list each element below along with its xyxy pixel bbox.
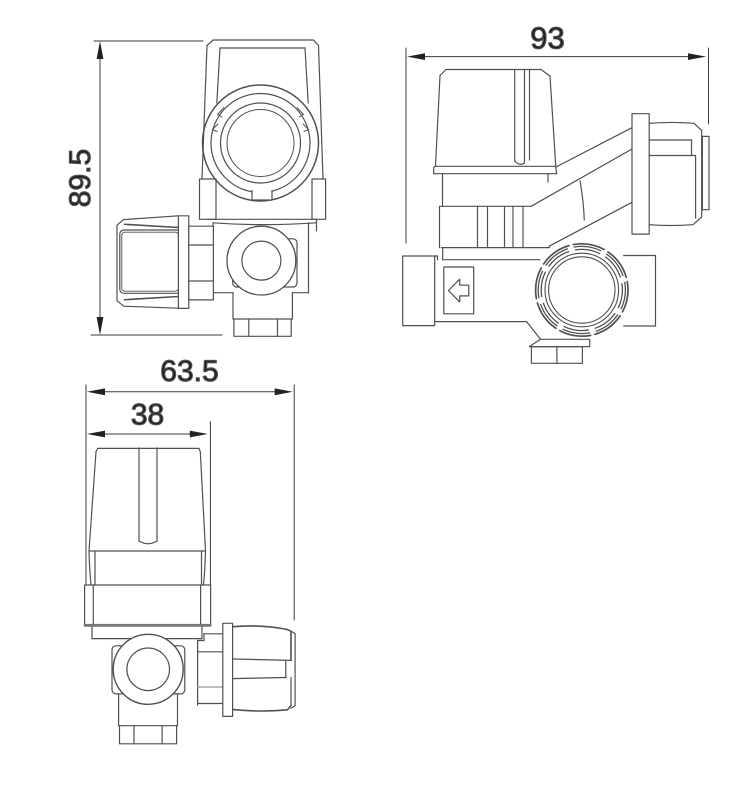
svg-text:38: 38 bbox=[131, 399, 164, 432]
svg-text:63.5: 63.5 bbox=[160, 355, 218, 388]
svg-text:89.5: 89.5 bbox=[64, 149, 97, 207]
svg-text:93: 93 bbox=[530, 21, 564, 56]
